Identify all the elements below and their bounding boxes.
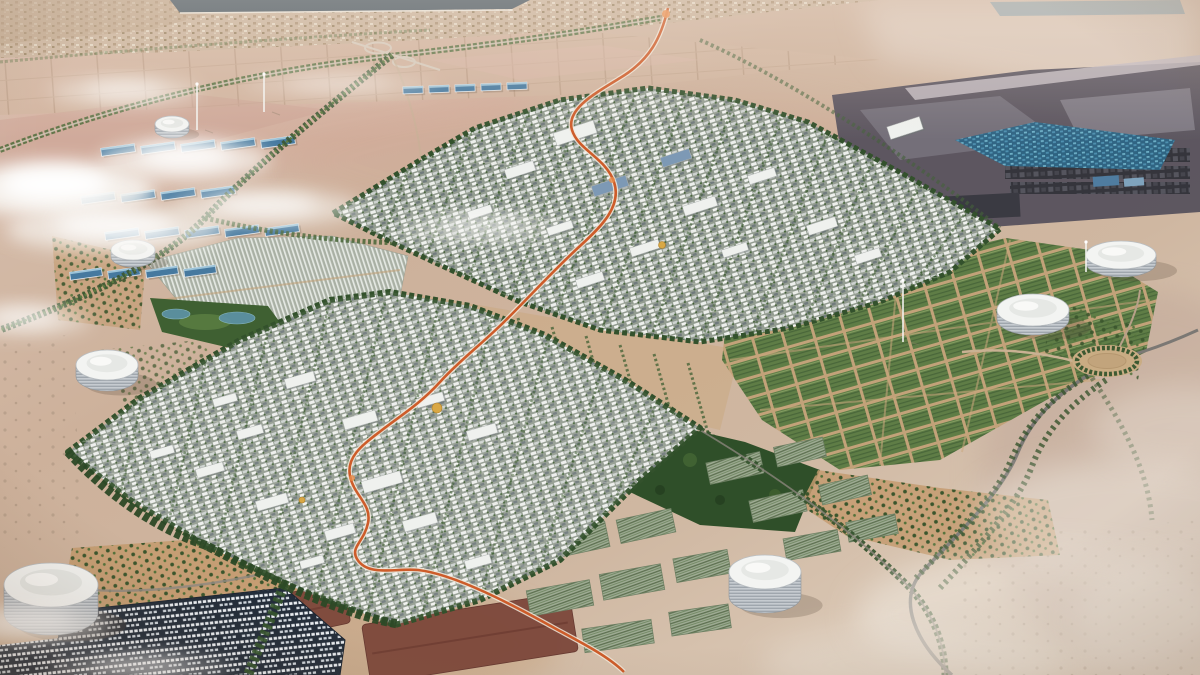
scene-canvas — [0, 0, 1200, 675]
aerial-city-rendering — [0, 0, 1200, 675]
vignette — [0, 0, 1200, 675]
